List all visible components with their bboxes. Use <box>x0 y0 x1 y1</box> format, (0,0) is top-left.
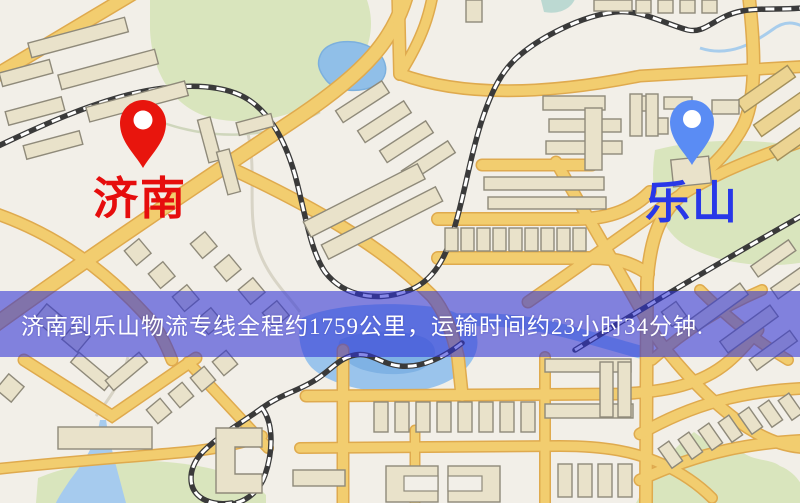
route-info-banner: 济南到乐山物流专线全程约1759公里，运输时间约23小时34分钟. <box>0 291 800 357</box>
destination-city-label: 乐山 <box>645 181 739 226</box>
origin-city-label: 济南 <box>93 177 187 222</box>
map-view: 济南 乐山 济南到乐山物流专线全程约1759公里，运输时间约23小时34分钟. <box>0 0 800 503</box>
map-canvas[interactable] <box>0 0 800 503</box>
route-info-text: 济南到乐山物流专线全程约1759公里，运输时间约23小时34分钟. <box>0 307 704 341</box>
